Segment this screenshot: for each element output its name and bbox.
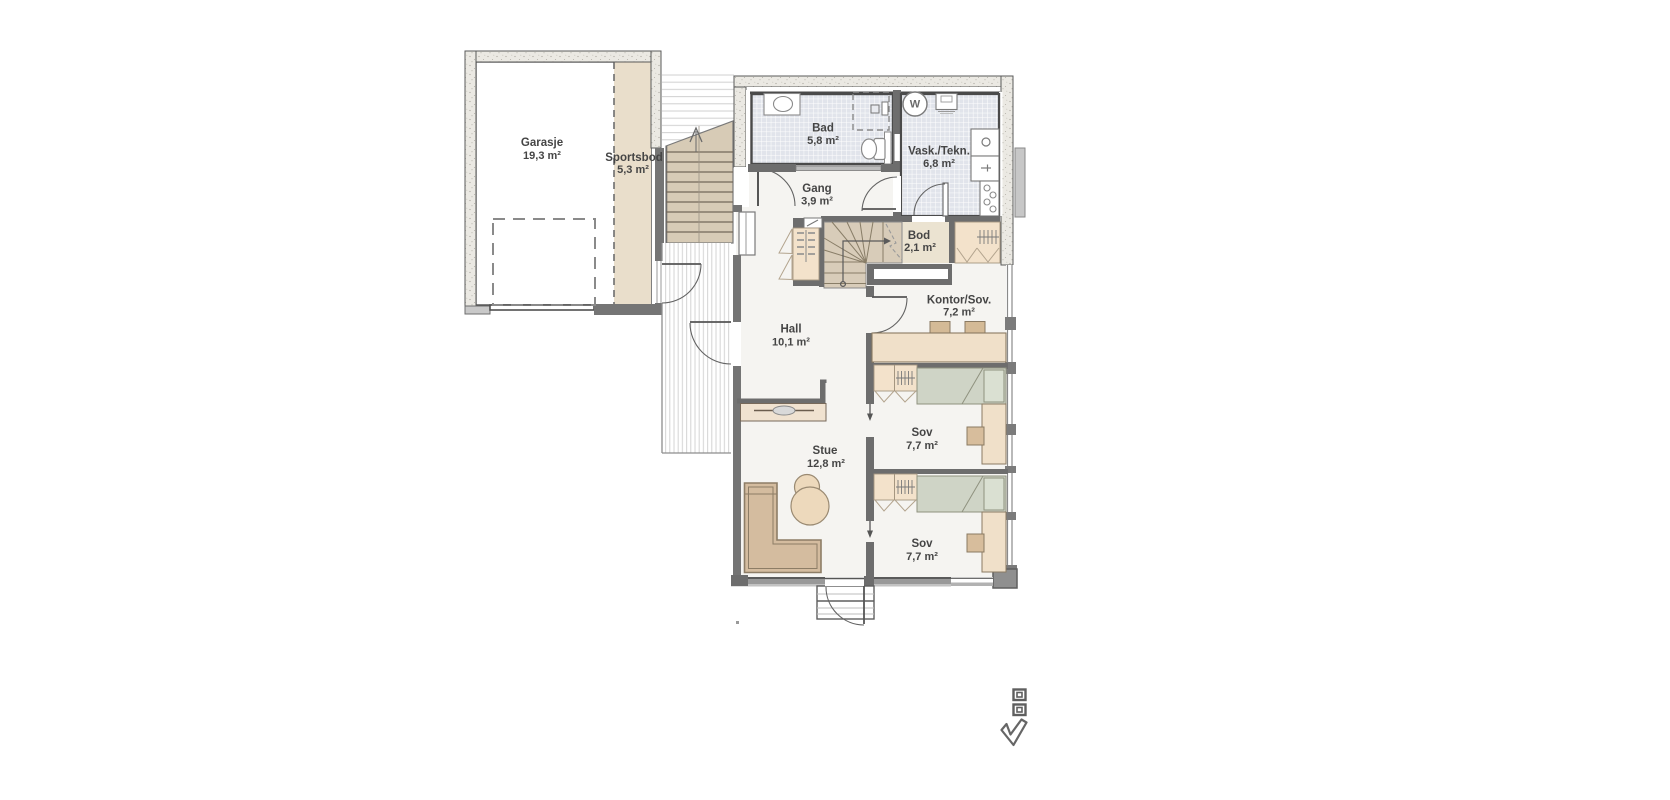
svg-text:Garasje: Garasje bbox=[521, 137, 563, 149]
svg-text:Hall: Hall bbox=[780, 324, 801, 336]
svg-text:10,1 m²: 10,1 m² bbox=[772, 337, 810, 349]
svg-text:7,7 m²: 7,7 m² bbox=[906, 440, 938, 452]
svg-text:Vask./Tekn.: Vask./Tekn. bbox=[908, 146, 970, 158]
svg-text:Bad: Bad bbox=[812, 123, 834, 135]
svg-text:7,2 m²: 7,2 m² bbox=[943, 307, 975, 319]
svg-text:12,8 m²: 12,8 m² bbox=[807, 458, 845, 470]
svg-text:Bod: Bod bbox=[908, 230, 930, 242]
svg-text:2,1 m²: 2,1 m² bbox=[904, 242, 936, 254]
svg-text:Sportsbod: Sportsbod bbox=[605, 152, 663, 164]
svg-text:7,7 m²: 7,7 m² bbox=[906, 551, 938, 563]
svg-text:Stue: Stue bbox=[813, 445, 838, 457]
svg-text:5,8 m²: 5,8 m² bbox=[807, 135, 839, 147]
svg-text:Kontor/Sov.: Kontor/Sov. bbox=[927, 295, 991, 307]
svg-text:Gang: Gang bbox=[802, 183, 831, 195]
svg-text:Sov: Sov bbox=[911, 427, 933, 439]
svg-text:3,9 m²: 3,9 m² bbox=[801, 196, 833, 208]
svg-text:5,3 m²: 5,3 m² bbox=[617, 164, 649, 176]
svg-text:W: W bbox=[910, 99, 921, 111]
svg-text:Sov: Sov bbox=[911, 538, 933, 550]
svg-text:19,3 m²: 19,3 m² bbox=[523, 150, 561, 162]
svg-text:6,8 m²: 6,8 m² bbox=[923, 158, 955, 170]
